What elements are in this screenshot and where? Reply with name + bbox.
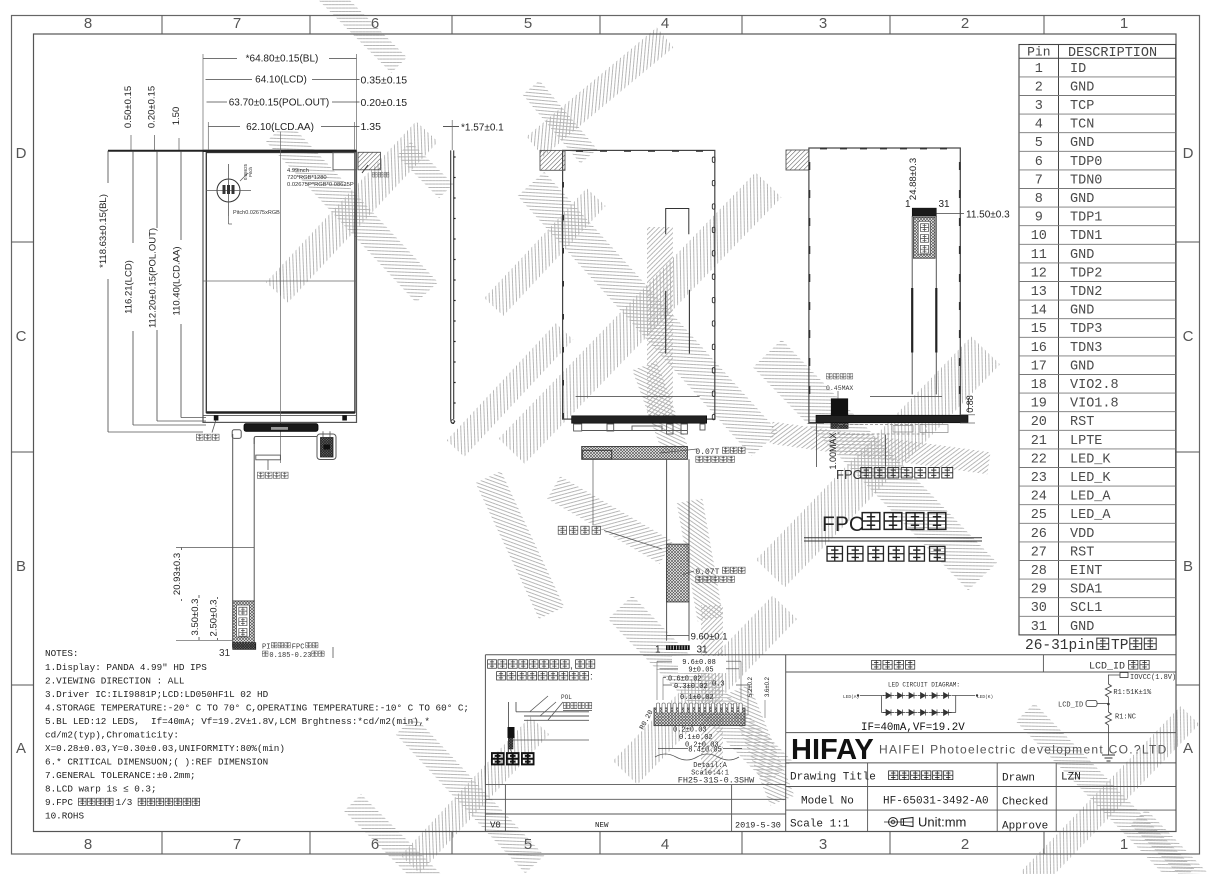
svg-text:B: B	[16, 558, 26, 575]
svg-text:TP: TP	[1111, 638, 1128, 654]
svg-text:*64.80±0.15(BL): *64.80±0.15(BL)	[246, 54, 319, 65]
svg-text:Unit:mm: Unit:mm	[918, 815, 966, 830]
svg-text:7: 7	[1035, 173, 1043, 188]
svg-text:12: 12	[1031, 266, 1047, 281]
svg-text:0.35±0.15: 0.35±0.15	[361, 74, 408, 86]
svg-text:11.50±0.3: 11.50±0.3	[966, 210, 1010, 221]
svg-text:0.07T: 0.07T	[695, 568, 719, 577]
svg-text:22: 22	[1031, 452, 1047, 467]
svg-text:4.99inch: 4.99inch	[287, 168, 309, 174]
svg-text:8.LCD warp is ≤ 0.3;: 8.LCD warp is ≤ 0.3;	[45, 784, 157, 795]
svg-text:4: 4	[661, 15, 669, 32]
svg-text:Drawn: Drawn	[1002, 773, 1035, 785]
svg-text:LED_A: LED_A	[1070, 508, 1111, 523]
svg-text:1.50: 1.50	[171, 107, 182, 126]
svg-text:PI: PI	[262, 644, 270, 652]
svg-text:EINT: EINT	[1070, 564, 1102, 579]
svg-text:6: 6	[1035, 155, 1043, 170]
svg-text:3.6±0.2: 3.6±0.2	[765, 676, 771, 697]
svg-text:SCL1: SCL1	[1070, 601, 1102, 616]
svg-text:0.1±0.02: 0.1±0.02	[680, 694, 714, 702]
svg-text:FPC: FPC	[836, 467, 862, 482]
svg-text:11: 11	[1031, 248, 1047, 263]
svg-text:GND: GND	[1070, 359, 1094, 374]
svg-text:0.07T: 0.07T	[695, 448, 719, 457]
svg-text:RST: RST	[1070, 545, 1094, 560]
svg-text:Pitch0.02675xRGB: Pitch0.02675xRGB	[233, 210, 280, 216]
svg-text:0.3±0.02: 0.3±0.02	[674, 683, 708, 691]
svg-text:27: 27	[1031, 545, 1047, 560]
svg-text:0.02675P*RGB*0.08625P: 0.02675P*RGB*0.08625P	[287, 182, 354, 188]
svg-text:SDA1: SDA1	[1070, 583, 1102, 598]
svg-text:A: A	[1183, 740, 1193, 757]
svg-text:LCD_ID: LCD_ID	[1089, 662, 1125, 673]
svg-text:VDD: VDD	[1070, 527, 1094, 542]
svg-text:LED_A: LED_A	[1070, 490, 1111, 505]
svg-text:17: 17	[1031, 359, 1047, 374]
svg-text:LED(A): LED(A)	[843, 694, 859, 700]
svg-text:8: 8	[1035, 192, 1043, 207]
svg-text:0.45MAX: 0.45MAX	[826, 385, 853, 392]
svg-text:25: 25	[1031, 508, 1047, 523]
svg-text:720*RGB*1280: 720*RGB*1280	[287, 175, 327, 181]
svg-text:5.2±0.2: 5.2±0.2	[748, 676, 754, 697]
svg-text:7: 7	[233, 15, 241, 32]
svg-text:POL: POL	[561, 694, 572, 701]
svg-text:10: 10	[1031, 229, 1047, 244]
svg-text:1.00MAX: 1.00MAX	[828, 432, 838, 469]
svg-text:GND: GND	[1070, 620, 1094, 635]
svg-text:R1:NC: R1:NC	[1115, 714, 1136, 722]
svg-text:9±0.05: 9±0.05	[688, 667, 713, 675]
svg-text:Pin: Pin	[1027, 45, 1050, 60]
svg-text:,: ,	[570, 661, 573, 672]
svg-text:LCD_ID: LCD_ID	[1058, 702, 1083, 710]
svg-text:110.40(LCD.AA): 110.40(LCD.AA)	[172, 247, 183, 316]
svg-text:31: 31	[939, 199, 951, 210]
svg-text:1: 1	[1120, 836, 1128, 853]
svg-text:TDP1: TDP1	[1070, 211, 1102, 226]
svg-text:4.STORAGE TEMPERATURE:-20° C T: 4.STORAGE TEMPERATURE:-20° C TO 70° C,OP…	[45, 703, 469, 714]
svg-text:5: 5	[524, 15, 532, 32]
svg-text:Pitch: Pitch	[248, 167, 253, 178]
svg-text:TDN1: TDN1	[1070, 229, 1102, 244]
svg-text:IOVCC(1.8V): IOVCC(1.8V)	[1130, 674, 1176, 682]
svg-text:4: 4	[661, 836, 669, 853]
svg-text:116.21(LCD): 116.21(LCD)	[124, 260, 135, 314]
svg-text:8: 8	[84, 836, 92, 853]
svg-text:6.* CRITICAL DIMENSUON;( ):REF: 6.* CRITICAL DIMENSUON;( ):REF DIMENSION	[45, 757, 268, 768]
svg-text:Approve: Approve	[1002, 821, 1048, 833]
svg-text:64.10(LCD): 64.10(LCD)	[255, 75, 307, 86]
svg-text:16: 16	[1031, 341, 1047, 356]
svg-text:LED CIRCUIT DIAGRAM:: LED CIRCUIT DIAGRAM:	[888, 682, 960, 689]
svg-text:GND: GND	[1070, 80, 1094, 95]
svg-text:4: 4	[1035, 118, 1043, 133]
svg-text::: :	[590, 672, 593, 683]
svg-text:3: 3	[1035, 99, 1043, 114]
svg-text:GND: GND	[1070, 192, 1094, 207]
svg-text:2.50±0.3: 2.50±0.3	[209, 600, 220, 637]
svg-text:LPTE: LPTE	[1070, 434, 1102, 449]
svg-text:1.35: 1.35	[361, 121, 382, 133]
svg-text:NEW: NEW	[595, 822, 609, 830]
svg-text:VIO1.8: VIO1.8	[1070, 397, 1119, 412]
svg-text:2019-5-30: 2019-5-30	[735, 821, 781, 831]
svg-text:0.185-0.23: 0.185-0.23	[269, 652, 311, 660]
svg-text:A: A	[16, 740, 26, 757]
svg-text:2: 2	[961, 836, 969, 853]
svg-text:0.3: 0.3	[712, 681, 725, 689]
svg-text:LED(K): LED(K)	[977, 694, 993, 700]
svg-text:30: 30	[1031, 601, 1047, 616]
svg-text:13: 13	[1031, 285, 1047, 300]
svg-text:7: 7	[233, 836, 241, 853]
svg-text:10.ROHS: 10.ROHS	[45, 811, 84, 822]
svg-text:Model No: Model No	[801, 796, 854, 808]
svg-text:0.20±0.15: 0.20±0.15	[361, 97, 408, 109]
svg-text:20: 20	[1031, 415, 1047, 430]
svg-text:0.20±0.15: 0.20±0.15	[147, 86, 158, 128]
svg-text:8: 8	[84, 15, 92, 32]
svg-text:NOTES:: NOTES:	[45, 648, 78, 659]
svg-text:5: 5	[1035, 136, 1043, 151]
svg-text:8.4±0.05: 8.4±0.05	[688, 747, 722, 755]
svg-text:0.88: 0.88	[965, 395, 975, 413]
svg-text:1: 1	[1120, 15, 1128, 32]
svg-text:ID: ID	[1070, 62, 1086, 77]
svg-text:TDN2: TDN2	[1070, 285, 1102, 300]
svg-text:TDN3: TDN3	[1070, 341, 1102, 356]
svg-text:TDN0: TDN0	[1070, 173, 1102, 188]
svg-text:20.93±0.3: 20.93±0.3	[172, 553, 183, 595]
svg-text:Scale 1:1: Scale 1:1	[790, 819, 850, 831]
svg-text:TDP0: TDP0	[1070, 155, 1102, 170]
svg-text:31: 31	[1031, 620, 1047, 635]
svg-text:B: B	[1183, 558, 1193, 575]
svg-text:18: 18	[1031, 378, 1047, 393]
svg-text:TCN: TCN	[1070, 118, 1094, 133]
svg-text:9: 9	[1035, 211, 1043, 226]
svg-text:*118.63±0.15(BL): *118.63±0.15(BL)	[98, 194, 109, 268]
svg-text:cd/m2(typ),Chromaticity:: cd/m2(typ),Chromaticity:	[45, 730, 179, 741]
svg-text:5.BL LED:12 LEDS, If=40mA; Vf: 5.BL LED:12 LEDS, If=40mA; Vf=19.2V±1.8V…	[45, 716, 430, 727]
svg-text:1: 1	[905, 199, 911, 210]
svg-text:Drawing Title: Drawing Title	[790, 772, 876, 784]
svg-text:V0: V0	[490, 821, 501, 831]
svg-text:23: 23	[1031, 471, 1047, 486]
svg-text:9.FPC: 9.FPC	[45, 797, 78, 808]
svg-text:LED_K: LED_K	[1070, 452, 1111, 467]
svg-text:5: 5	[524, 836, 532, 853]
svg-text:HF-65031-3492-A0: HF-65031-3492-A0	[883, 796, 989, 808]
svg-text:GND: GND	[1070, 304, 1094, 319]
svg-text:63.70±0.15(POL.OUT): 63.70±0.15(POL.OUT)	[229, 97, 330, 108]
svg-text:14: 14	[1031, 304, 1047, 319]
svg-text:26-31pin: 26-31pin	[1025, 638, 1095, 654]
svg-text:GND: GND	[1070, 136, 1094, 151]
svg-text:R1:51K±1%: R1:51K±1%	[1113, 689, 1152, 697]
svg-text:2: 2	[961, 15, 969, 32]
svg-text:VIO2.8: VIO2.8	[1070, 378, 1119, 393]
svg-text:HIFAY: HIFAY	[791, 734, 874, 766]
svg-text:31: 31	[219, 648, 231, 659]
svg-text:HAIFEI Photoelectric developme: HAIFEI Photoelectric development CO.?LTD	[879, 743, 1168, 757]
svg-text:3.Driver IC:ILI9881P;LCD:LD050: 3.Driver IC:ILI9881P;LCD:LD050HF1L 02 HD	[45, 689, 269, 700]
svg-text:3: 3	[819, 836, 827, 853]
svg-text:RST: RST	[1070, 415, 1094, 430]
svg-text:0.50±0.15: 0.50±0.15	[123, 86, 134, 128]
svg-text:24.88±0.3: 24.88±0.3	[908, 158, 919, 200]
svg-text:1: 1	[655, 645, 661, 656]
svg-text:TCP: TCP	[1070, 99, 1094, 114]
svg-text:LED_K: LED_K	[1070, 471, 1111, 486]
svg-text:FPC: FPC	[292, 644, 305, 652]
svg-text:26: 26	[1031, 527, 1047, 542]
svg-text:FH25-31S-0.3SHW: FH25-31S-0.3SHW	[678, 776, 755, 786]
svg-text:Checked: Checked	[1002, 797, 1048, 809]
svg-text:TDP2: TDP2	[1070, 266, 1102, 281]
svg-text:TDP3: TDP3	[1070, 322, 1102, 337]
svg-text:D: D	[1183, 145, 1194, 162]
svg-text:LZN: LZN	[1061, 772, 1081, 784]
svg-text:IF=40mA,VF=19.2V: IF=40mA,VF=19.2V	[861, 722, 965, 734]
svg-text:DESCRIPTION: DESCRIPTION	[1068, 46, 1157, 61]
svg-text:GND: GND	[1070, 248, 1094, 263]
svg-text:6: 6	[371, 836, 379, 853]
svg-text:7.GENERAL TOLERANCE:±0.2mm;: 7.GENERAL TOLERANCE:±0.2mm;	[45, 770, 196, 781]
svg-text:6: 6	[371, 15, 379, 32]
svg-text:C: C	[1183, 328, 1194, 345]
svg-text:1.Display: PANDA 4.99" HD IPS: 1.Display: PANDA 4.99" HD IPS	[45, 662, 207, 673]
svg-text:21: 21	[1031, 434, 1047, 449]
svg-text:1/3: 1/3	[116, 797, 138, 808]
svg-text:28: 28	[1031, 564, 1047, 579]
svg-text:*1.57±0.1: *1.57±0.1	[461, 123, 504, 134]
svg-text:62.10(LCD.AA): 62.10(LCD.AA)	[246, 122, 314, 133]
svg-text:15: 15	[1031, 322, 1047, 337]
svg-text:9.60±0.1: 9.60±0.1	[691, 632, 728, 643]
svg-text:29: 29	[1031, 583, 1047, 598]
svg-text:D: D	[16, 145, 27, 162]
svg-text:FPC: FPC	[822, 513, 864, 536]
svg-text:3: 3	[819, 15, 827, 32]
svg-text:24: 24	[1031, 490, 1047, 505]
svg-text:X=0.28±0.03,Y=0.30±0.03,UNIFOR: X=0.28±0.03,Y=0.30±0.03,UNIFORMITY:80%(m…	[45, 743, 285, 754]
svg-text:2.VIEWING DIRECTION : ALL: 2.VIEWING DIRECTION : ALL	[45, 676, 184, 687]
svg-text:3.50±0.3: 3.50±0.3	[190, 599, 201, 636]
svg-text:1: 1	[1035, 62, 1043, 77]
svg-text:2: 2	[1035, 80, 1043, 95]
svg-text:112.20±0.15(POL.OUT): 112.20±0.15(POL.OUT)	[148, 228, 159, 328]
svg-text:31: 31	[697, 645, 709, 656]
svg-text:19: 19	[1031, 397, 1047, 412]
svg-text:C: C	[16, 328, 27, 345]
